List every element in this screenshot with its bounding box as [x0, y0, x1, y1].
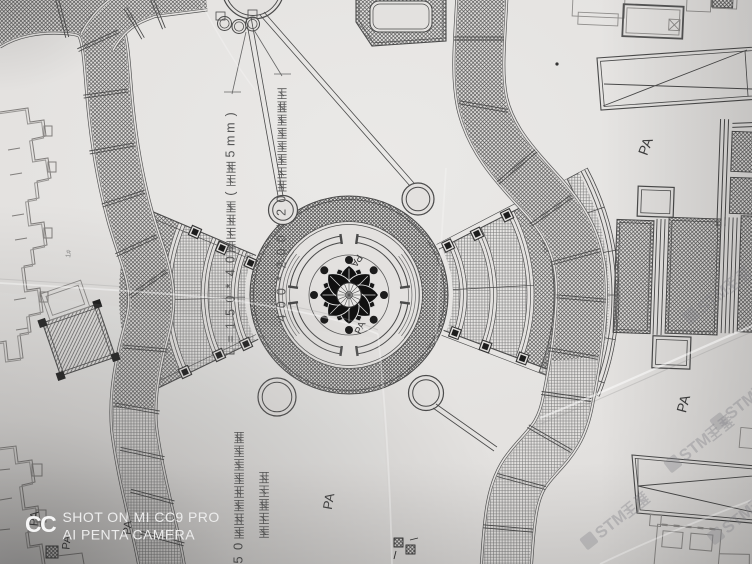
svg-text:SHOT ON MI CC9 PRO: SHOT ON MI CC9 PRO	[63, 509, 220, 525]
svg-text:CC: CC	[25, 511, 56, 537]
svg-text:AI PENTA CAMERA: AI PENTA CAMERA	[63, 527, 196, 543]
